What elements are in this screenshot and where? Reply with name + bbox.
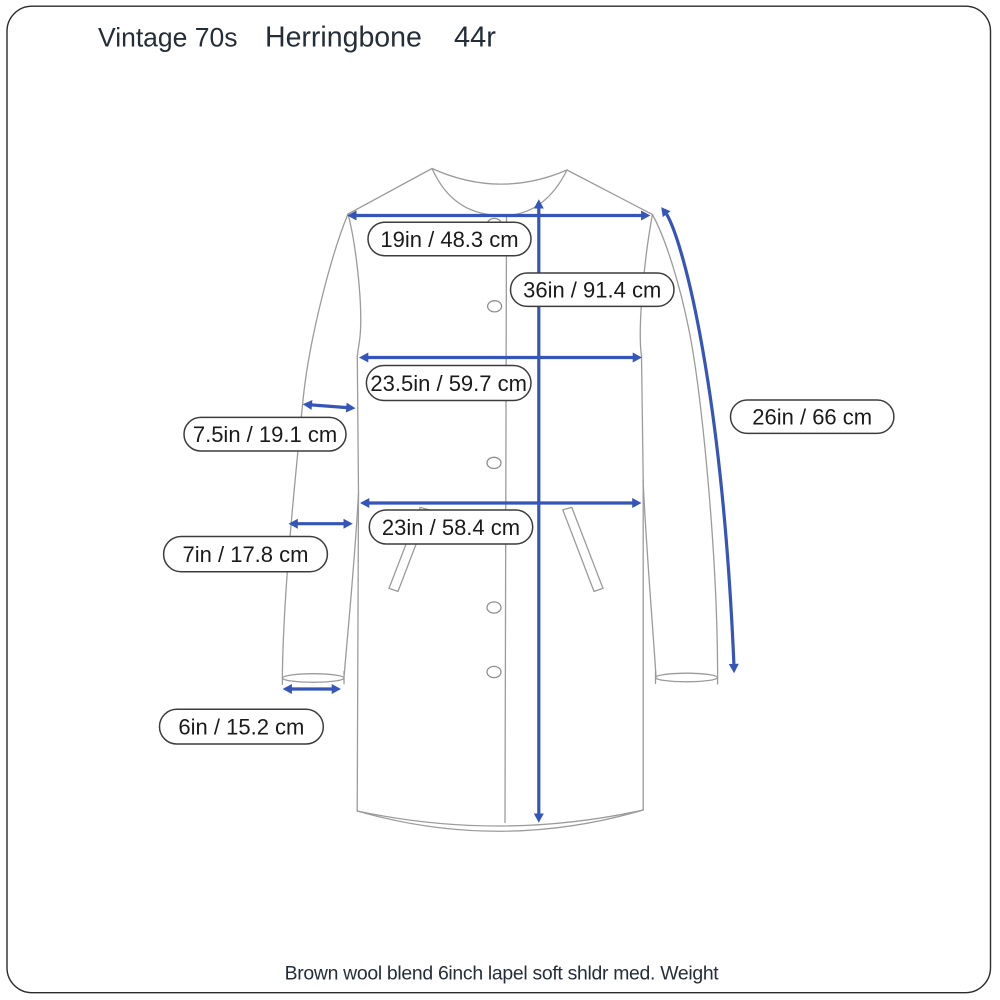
svg-text:36in / 91.4 cm: 36in / 91.4 cm (523, 278, 661, 303)
svg-text:Herringbone: Herringbone (265, 22, 422, 54)
svg-text:Brown wool blend 6inch lapel s: Brown wool blend 6inch lapel soft shldr … (285, 963, 720, 985)
svg-text:7.5in / 19.1 cm: 7.5in / 19.1 cm (193, 422, 337, 447)
svg-text:6in / 15.2 cm: 6in / 15.2 cm (178, 714, 304, 739)
svg-text:23in / 58.4 cm: 23in / 58.4 cm (382, 515, 520, 540)
svg-text:44r: 44r (454, 22, 496, 54)
svg-text:26in / 66 cm: 26in / 66 cm (752, 405, 872, 430)
svg-text:Vintage 70s: Vintage 70s (98, 23, 238, 53)
svg-text:19in / 48.3 cm: 19in / 48.3 cm (380, 227, 518, 252)
svg-text:23.5in / 59.7 cm: 23.5in / 59.7 cm (370, 371, 527, 396)
svg-text:7in / 17.8 cm: 7in / 17.8 cm (183, 542, 309, 567)
